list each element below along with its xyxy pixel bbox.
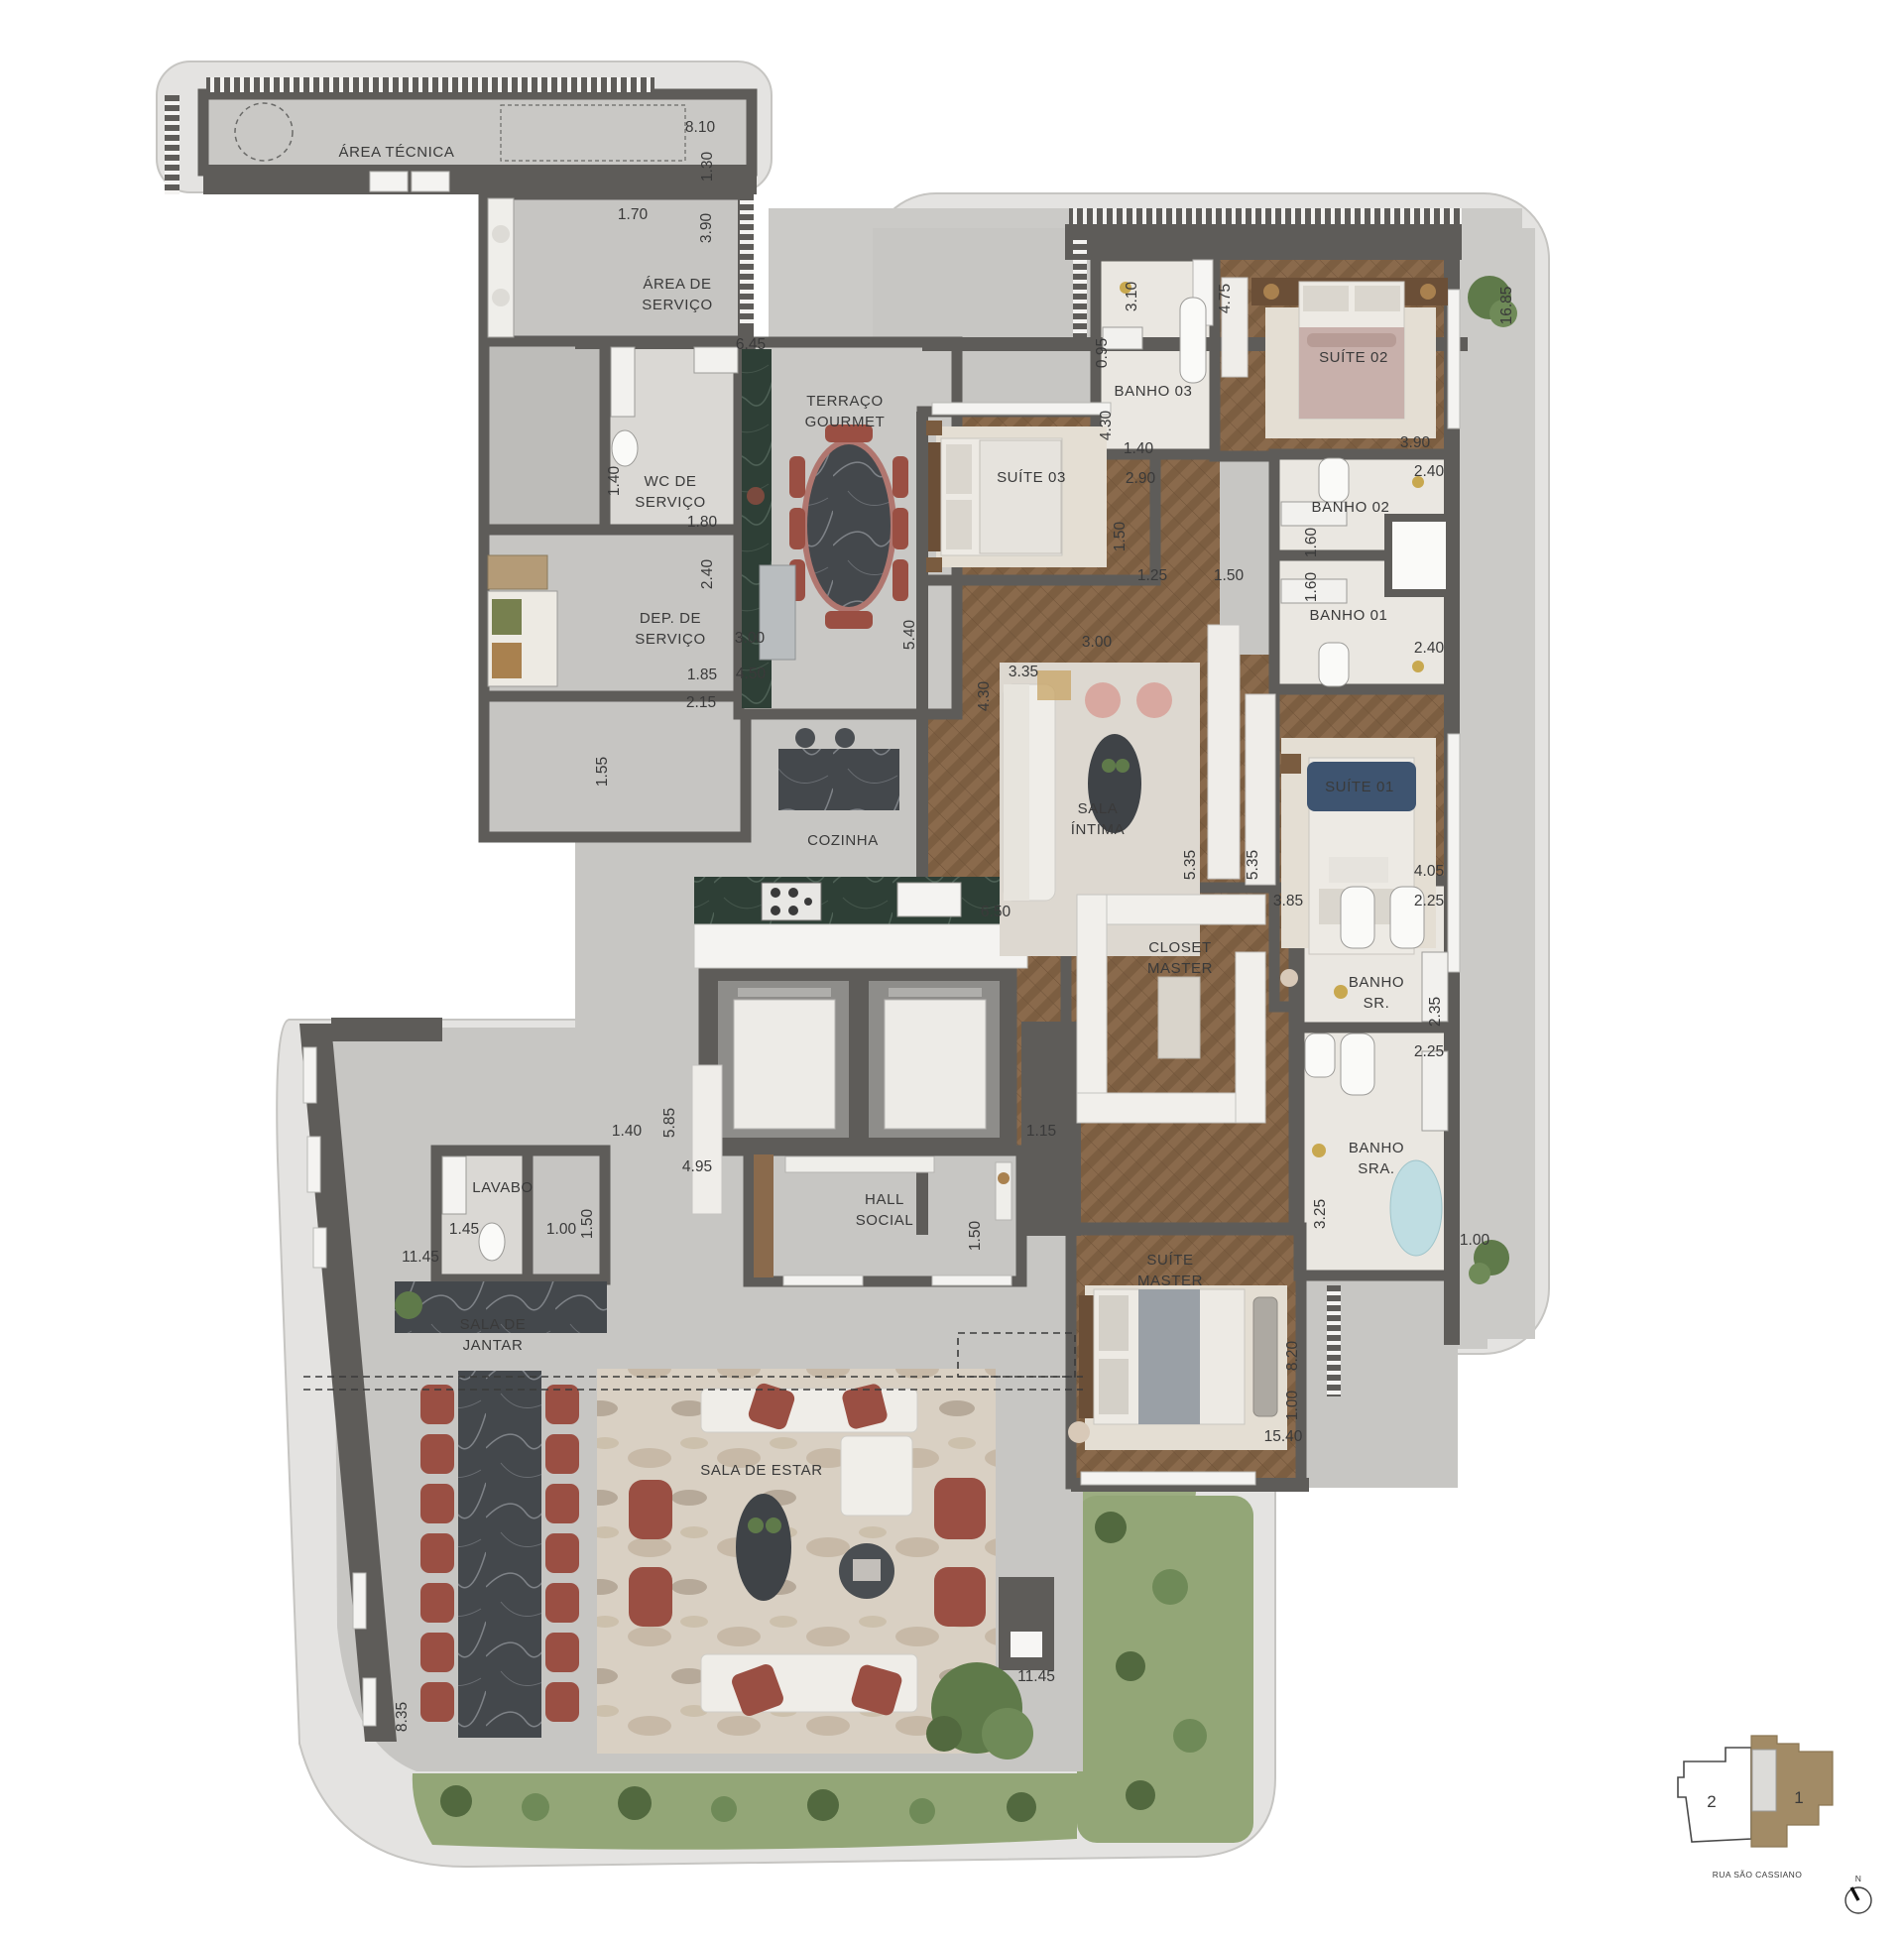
- dim-5.35: 5.35: [1245, 850, 1261, 880]
- wardrobe-strip: [1208, 625, 1240, 879]
- room-label-banho-03: BANHO 03: [1115, 383, 1193, 400]
- dim-2.35: 2.35: [1427, 997, 1444, 1027]
- suite-03-bed: [926, 421, 1107, 572]
- dim-1.50: 1.50: [579, 1209, 596, 1240]
- dim-2.40: 2.40: [699, 559, 716, 590]
- dim-2.40: 2.40: [1414, 463, 1445, 480]
- room-label-banho-01: BANHO 01: [1310, 607, 1388, 624]
- dim-3.10: 3.10: [1124, 282, 1140, 312]
- suite-master-bed: [1068, 1285, 1287, 1450]
- room-label-sala-de-estar: SALA DE ESTAR: [700, 1462, 822, 1479]
- keyplan-unit-label-2: 2: [1707, 1792, 1716, 1811]
- dim-4.95: 4.95: [682, 1158, 712, 1175]
- floor-plan-page: ÁREA TÉCNICAÁREA DESERVIÇOWC DESERVIÇODE…: [0, 0, 1904, 1942]
- dim-1.00: 1.00: [1460, 1232, 1490, 1249]
- dim-2.90: 2.90: [1126, 470, 1156, 487]
- keyplan-core: [1752, 1750, 1776, 1811]
- room-label-suite-02: SUÍTE 02: [1319, 349, 1388, 366]
- dim-8.20: 8.20: [1284, 1341, 1301, 1372]
- dim-1.30: 1.30: [699, 152, 716, 182]
- dim-6.50: 6.50: [981, 904, 1011, 920]
- dim-1.60: 1.60: [1303, 528, 1320, 558]
- dim-2.40: 2.40: [1414, 640, 1445, 657]
- dim-1.50: 1.50: [967, 1221, 984, 1252]
- dim-4.05: 4.05: [1414, 863, 1444, 880]
- dim-1.45: 1.45: [449, 1221, 479, 1238]
- dim-1.50: 1.50: [1214, 567, 1245, 584]
- dim-11.45: 11.45: [402, 1249, 439, 1266]
- dim-1.40: 1.40: [1124, 440, 1154, 457]
- dim-3.00: 3.00: [735, 630, 766, 647]
- dim-11.45: 11.45: [1017, 1668, 1055, 1685]
- dim-1.25: 1.25: [1137, 567, 1167, 584]
- north-label: N: [1855, 1874, 1862, 1883]
- dim-1.60: 1.60: [1303, 572, 1320, 603]
- dim-3.25: 3.25: [1312, 1199, 1329, 1229]
- dim-16.85: 16.85: [1498, 287, 1515, 325]
- keyplan-unit-label-1: 1: [1794, 1788, 1803, 1807]
- kitchen-counter: [694, 877, 1027, 924]
- dim-2.25: 2.25: [1414, 1043, 1444, 1060]
- dim-6.45: 6.45: [736, 336, 766, 353]
- dim-15.40: 15.40: [1264, 1428, 1303, 1445]
- dim-1.70: 1.70: [618, 206, 649, 223]
- dim-5.40: 5.40: [901, 620, 918, 651]
- room-label-lavabo: LAVABO: [472, 1179, 533, 1196]
- dim-0.95: 0.95: [1094, 338, 1111, 368]
- dim-1.00: 1.00: [1284, 1391, 1301, 1421]
- room-label-cozinha: COZINHA: [807, 832, 879, 849]
- dim-8.10: 8.10: [685, 119, 716, 136]
- dim-3.35: 3.35: [1009, 664, 1038, 680]
- dim-1.80: 1.80: [687, 514, 718, 531]
- dim-1.15: 1.15: [1026, 1123, 1056, 1140]
- closet-island: [1158, 977, 1200, 1058]
- dim-1.40: 1.40: [612, 1123, 643, 1140]
- room-label-suite-03: SUÍTE 03: [997, 469, 1066, 486]
- dim-1.00: 1.00: [546, 1221, 577, 1238]
- dim-4.75: 4.75: [1217, 284, 1234, 313]
- dim-5.85: 5.85: [661, 1108, 678, 1138]
- bathtub: [1390, 1160, 1442, 1256]
- room-label-suite-01: SUÍTE 01: [1325, 779, 1394, 795]
- keyplan: 21 RUA SÃO CASSIANO N: [1678, 1736, 1871, 1913]
- dim-3.90: 3.90: [1400, 434, 1431, 451]
- room-label-area-tecnica: ÁREA TÉCNICA: [339, 144, 455, 161]
- dim-3.90: 3.90: [698, 213, 715, 244]
- room-label-banho-02: BANHO 02: [1312, 499, 1390, 516]
- dim-3.00: 3.00: [1082, 634, 1113, 651]
- dim-3.85: 3.85: [1273, 893, 1303, 910]
- dim-1.85: 1.85: [687, 667, 717, 683]
- kitchen-sink: [897, 883, 961, 916]
- dim-1.40: 1.40: [606, 466, 623, 497]
- dim-4.30: 4.30: [1098, 411, 1115, 441]
- dim-5.35: 5.35: [1182, 850, 1199, 880]
- fireplace: [1011, 1632, 1042, 1657]
- dim-1.50: 1.50: [1112, 522, 1129, 552]
- dim-4.30: 4.30: [976, 681, 993, 712]
- dim-2.15: 2.15: [686, 694, 716, 711]
- north-arrow: N: [1845, 1874, 1871, 1913]
- dim-1.55: 1.55: [594, 757, 611, 787]
- dim-4.50: 4.50: [736, 666, 767, 682]
- dim-8.35: 8.35: [394, 1702, 411, 1732]
- floor-plan-canvas: ÁREA TÉCNICAÁREA DESERVIÇOWC DESERVIÇODE…: [0, 0, 1904, 1942]
- street-label: RUA SÃO CASSIANO: [1713, 1870, 1802, 1880]
- dim-2.25: 2.25: [1414, 893, 1444, 910]
